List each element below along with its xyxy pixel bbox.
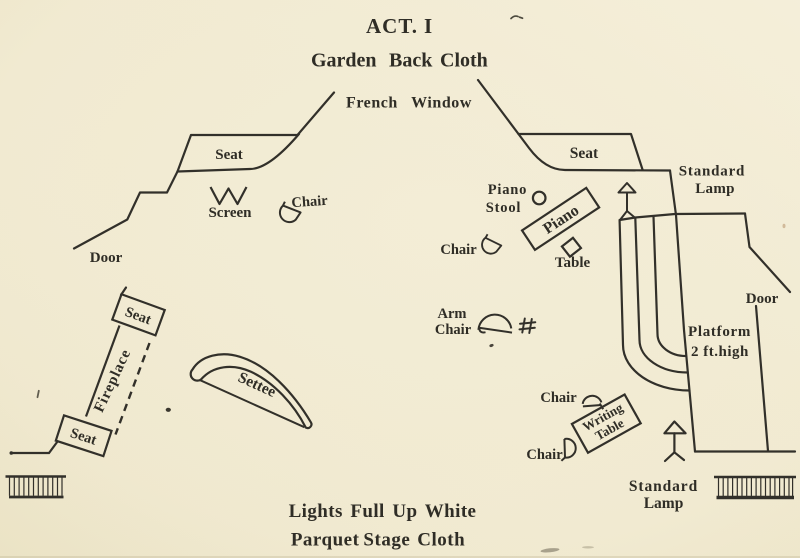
svg-text:Stool: Stool bbox=[486, 200, 521, 216]
svg-text:ACT.: ACT. bbox=[366, 14, 418, 38]
svg-text:Standard: Standard bbox=[629, 478, 698, 495]
svg-text:Door: Door bbox=[746, 291, 779, 307]
svg-text:ParquetStageCloth: ParquetStageCloth bbox=[291, 530, 465, 551]
svg-text:Lights Full Up White: Lights Full Up White bbox=[289, 501, 477, 522]
svg-text:Seat: Seat bbox=[215, 147, 243, 163]
svg-text:Arm: Arm bbox=[438, 306, 467, 322]
svg-text:Piano: Piano bbox=[488, 182, 527, 198]
svg-text:Chair: Chair bbox=[526, 447, 563, 463]
svg-text:GardenBackCloth: GardenBackCloth bbox=[311, 50, 488, 72]
svg-text:I: I bbox=[424, 14, 432, 38]
svg-text:Standard: Standard bbox=[679, 164, 745, 180]
svg-text:Platform: Platform bbox=[688, 324, 751, 340]
svg-text:Door: Door bbox=[90, 250, 123, 266]
svg-text:Chair: Chair bbox=[440, 242, 477, 258]
svg-text:French Window: French Window bbox=[346, 95, 472, 112]
svg-text:Screen: Screen bbox=[208, 205, 252, 221]
svg-text:Seat: Seat bbox=[570, 145, 599, 162]
svg-text:Lamp: Lamp bbox=[695, 181, 735, 197]
svg-text:2 ft.high: 2 ft.high bbox=[691, 344, 749, 360]
svg-text:Table: Table bbox=[555, 255, 591, 271]
svg-text:Lamp: Lamp bbox=[644, 495, 684, 512]
svg-text:Chair: Chair bbox=[291, 193, 329, 212]
svg-text:Chair: Chair bbox=[540, 390, 577, 406]
svg-text:Chair: Chair bbox=[435, 322, 472, 338]
